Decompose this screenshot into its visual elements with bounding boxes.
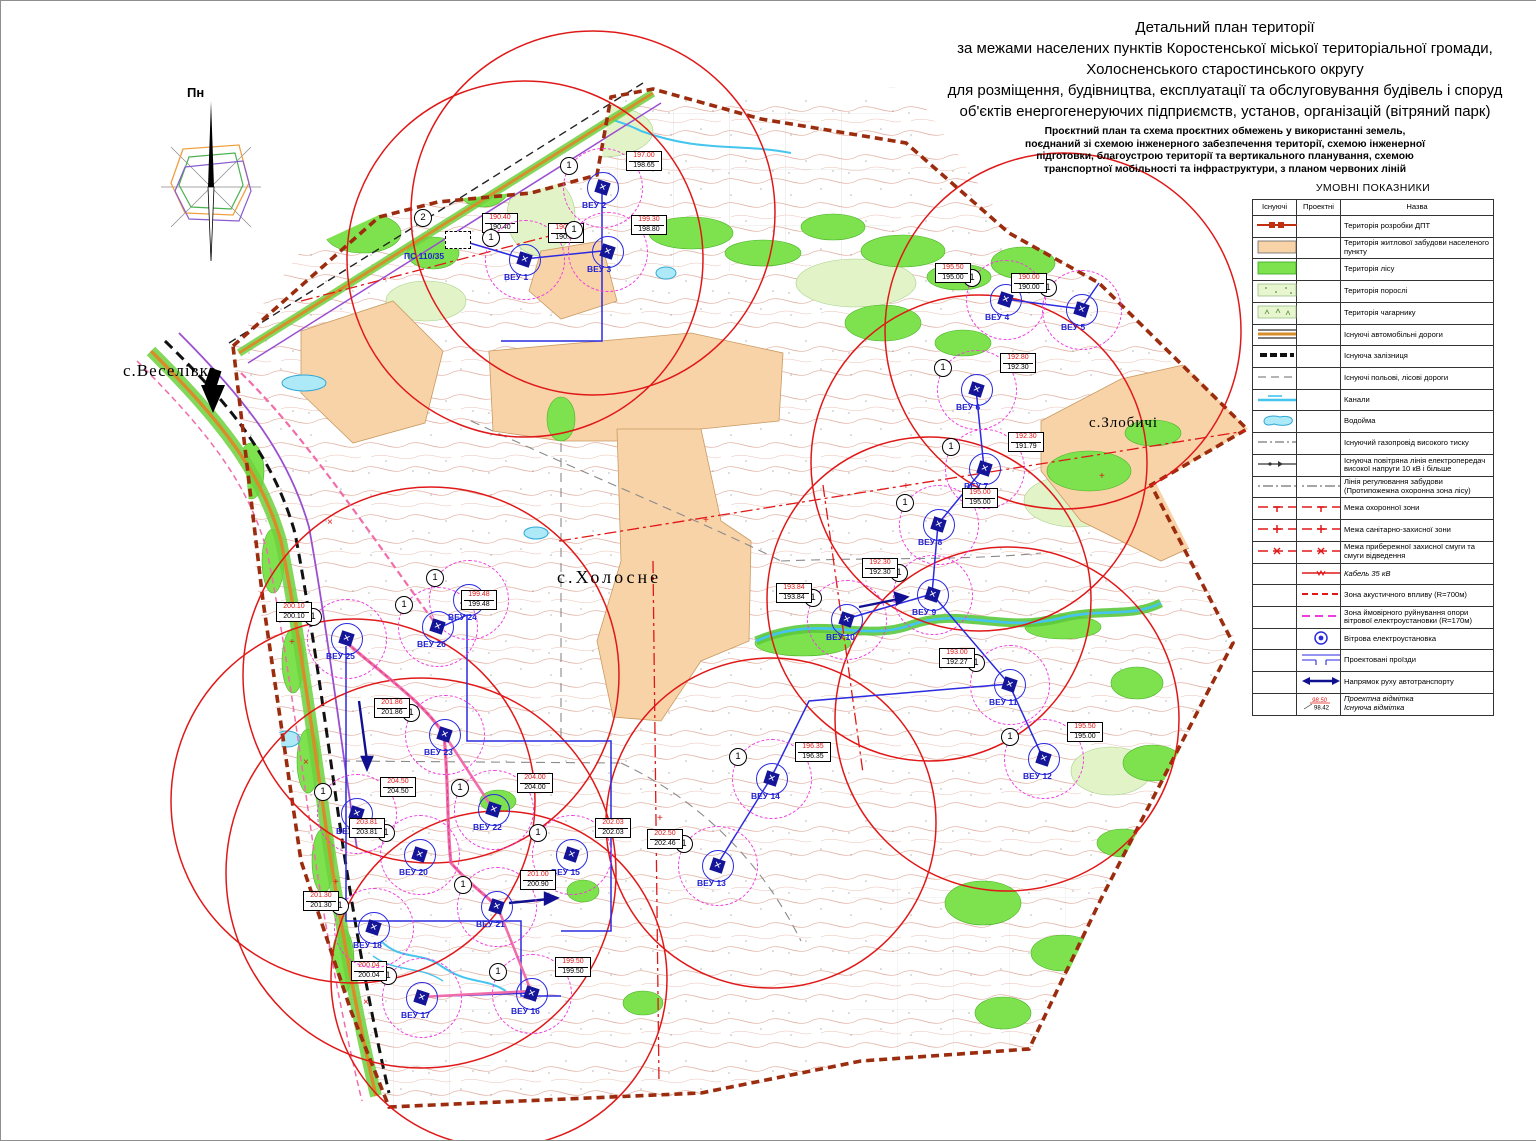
legend-symbol-projected <box>1297 454 1341 476</box>
turbine-elevation-box: 195.00195.00 <box>962 488 998 508</box>
legend-symbol-projected <box>1297 389 1341 411</box>
legend-symbol-existing <box>1253 433 1297 455</box>
legend-row: Існуючі польові, лісові дороги <box>1253 368 1494 390</box>
elevation-existing: 192.30 <box>865 569 895 578</box>
svg-text:+: + <box>657 813 663 824</box>
elevation-existing: 196.35 <box>798 753 828 762</box>
elevation-existing: 195.00 <box>1070 733 1100 742</box>
turbine-badge: 1 <box>565 221 583 239</box>
legend-row: Кабель 35 кВ <box>1253 563 1494 585</box>
elevation-projected: 192.30 <box>1011 433 1041 443</box>
elevation-existing: 191.79 <box>1011 443 1041 452</box>
elevation-existing: 192.30 <box>1003 364 1033 373</box>
turbine-label: ВЕУ 8 <box>918 537 942 547</box>
legend-item-name: Напрямок руху автотранспорту <box>1341 672 1494 694</box>
legend-row: 98.5098.42Проектна відмітка Існуюча відм… <box>1253 693 1494 715</box>
legend-symbol-projected <box>1297 259 1341 281</box>
legend-symbol-existing <box>1253 346 1297 368</box>
elevation-existing: 202.03 <box>598 829 628 838</box>
turbine-elevation-box: 199.50199.50 <box>555 957 591 977</box>
substation-badge: 2 <box>414 209 432 227</box>
title-line: Холосненського старостинського округу <box>929 59 1521 80</box>
legend-symbol-existing <box>1253 259 1297 281</box>
legend-item-name: Межа прибережної захисної смуги та смуги… <box>1341 541 1494 563</box>
legend-row: Вітрова електроустановка <box>1253 628 1494 650</box>
turbine-badge: 1 <box>314 783 332 801</box>
turbine-elevation-box: 192.30192.30 <box>862 558 898 578</box>
turbine-elevation-box: 204.50204.50 <box>380 777 416 797</box>
svg-text:×: × <box>363 997 369 1008</box>
elevation-existing: 201.86 <box>377 709 407 718</box>
legend-symbol-projected <box>1297 606 1341 628</box>
elevation-projected: 195.50 <box>938 264 968 274</box>
elevation-projected: 192.80 <box>1003 354 1033 364</box>
elevation-projected: 201.30 <box>306 892 336 902</box>
village-label-zlobychi: с.Злобичі <box>1089 415 1158 432</box>
legend-item-name: Водойма <box>1341 411 1494 433</box>
turbine-label: ВЕУ 22 <box>473 822 502 832</box>
turbine-badge: 1 <box>395 596 413 614</box>
legend-symbol-existing <box>1253 216 1297 238</box>
turbine-badge: 1 <box>934 359 952 377</box>
svg-text:+: + <box>1099 471 1105 482</box>
elevation-projected: 199.50 <box>558 958 588 968</box>
legend-table: Існуючі Проектні Назва Територія розробк… <box>1252 199 1494 716</box>
turbine-label: ВЕУ 4 <box>985 312 1009 322</box>
legend-symbol-existing <box>1253 606 1297 628</box>
turbine-badge: 1 <box>489 963 507 981</box>
elevation-projected: 204.50 <box>383 778 413 788</box>
legend-row: Територія лісу <box>1253 259 1494 281</box>
turbine-badge: 1 <box>896 494 914 512</box>
subtitle-line: транспортної мобільності та інфраструкту… <box>929 164 1521 177</box>
turbine-label: ВЕУ 10 <box>826 632 855 642</box>
legend-col-existing: Існуючі <box>1253 200 1297 216</box>
legend-col-name: Назва <box>1341 200 1494 216</box>
turbine-elevation-box: 199.48199.48 <box>461 590 497 610</box>
legend-row: Територія розробки ДПТ <box>1253 216 1494 238</box>
elevation-existing: 198.80 <box>634 226 664 235</box>
title-line: об'єктів енергогенеруючих підприємств, у… <box>929 101 1521 122</box>
village-label-kholosne: с.Холосне <box>557 567 661 588</box>
legend-row: Проектовані проїзди <box>1253 650 1494 672</box>
legend-row: Лінія регулювання забудови (Протипожежна… <box>1253 476 1494 498</box>
turbine-badge: 1 <box>454 876 472 894</box>
legend-symbol-existing <box>1253 520 1297 542</box>
elevation-existing: 204.00 <box>520 784 550 793</box>
turbine-elevation-box: 201.30201.30 <box>303 891 339 911</box>
elevation-projected: 192.30 <box>865 559 895 569</box>
turbine-elevation-box: 193.84193.84 <box>776 583 812 603</box>
legend-item-name: Канали <box>1341 389 1494 411</box>
legend-item-name: Зона ймовірного руйнування опори вітрово… <box>1341 606 1494 628</box>
legend-item-name: Межа охоронної зони <box>1341 498 1494 520</box>
elevation-existing: 195.00 <box>938 274 968 283</box>
elevation-existing: 200.90 <box>523 881 553 890</box>
legend-item-name: Існуюча повітряна лінія електропередач в… <box>1341 454 1494 476</box>
subtitle-line: Проєктний план та схема проєктних обмеже… <box>929 126 1521 139</box>
legend-symbol-existing <box>1253 411 1297 433</box>
elevation-projected: 195.50 <box>1070 723 1100 733</box>
substation-label: ПС 110/35 <box>404 251 444 261</box>
elevation-existing: 200.04 <box>354 972 384 981</box>
turbine-elevation-box: 192.30191.79 <box>1008 432 1044 452</box>
title-line: за межами населених пунктів Коростенсько… <box>929 38 1521 59</box>
legend-symbol-projected <box>1297 281 1341 303</box>
legend-symbol-projected <box>1297 216 1341 238</box>
turbine-label: ВЕУ 25 <box>326 651 355 661</box>
turbine-label: ВЕУ 2 <box>582 200 606 210</box>
turbine-elevation-box: 192.80192.30 <box>1000 353 1036 373</box>
turbine-elevation-box: 193.00192.27 <box>939 648 975 668</box>
legend-item-name: Існуючі автомобільні дороги <box>1341 324 1494 346</box>
turbine-label: ВЕУ 21 <box>476 919 505 929</box>
elevation-projected: 199.30 <box>634 216 664 226</box>
legend-symbol-projected <box>1297 411 1341 433</box>
compass-north-label: Пн <box>187 85 204 100</box>
turbine-badge: 1 <box>482 229 500 247</box>
legend-item-name: Проектовані проїзди <box>1341 650 1494 672</box>
legend-symbol-projected <box>1297 302 1341 324</box>
svg-text:98.42: 98.42 <box>1314 705 1330 711</box>
turbine-label: ВЕУ 3 <box>587 264 611 274</box>
legend-symbol-projected <box>1297 368 1341 390</box>
elevation-projected: 202.03 <box>598 819 628 829</box>
turbine-elevation-box: 190.00190.00 <box>1011 273 1047 293</box>
turbine-label: ВЕУ 13 <box>697 878 726 888</box>
turbine-elevation-box: 195.50195.00 <box>1067 722 1103 742</box>
elevation-existing: 200.10 <box>279 613 309 622</box>
legend-symbol-projected <box>1297 628 1341 650</box>
legend-col-projected: Проектні <box>1297 200 1341 216</box>
legend-symbol-existing <box>1253 368 1297 390</box>
legend-row: Існуюча залізниця <box>1253 346 1494 368</box>
legend-symbol-existing <box>1253 563 1297 585</box>
elevation-projected: 201.86 <box>377 699 407 709</box>
elevation-existing: 203.81 <box>352 829 382 838</box>
turbine-elevation-box: 196.35196.35 <box>795 742 831 762</box>
elevation-existing: 195.00 <box>965 499 995 508</box>
plan-sheet: ×+× +×+ ++× + <box>0 0 1536 1141</box>
turbine-label: ВЕУ 18 <box>353 940 382 950</box>
legend-item-name: Зона акустичного впливу (R=700м) <box>1341 585 1494 607</box>
elevation-projected: 190.00 <box>1014 274 1044 284</box>
compass-graphic <box>143 85 283 265</box>
elevation-existing: 192.27 <box>942 659 972 668</box>
elevation-projected: 202.50 <box>650 830 680 840</box>
legend-symbol-existing <box>1253 454 1297 476</box>
elevation-existing: 201.30 <box>306 902 336 911</box>
legend-row: Межа охоронної зони <box>1253 498 1494 520</box>
turbine-label: ВЕУ 26 <box>417 639 446 649</box>
elevation-projected: 200.10 <box>279 603 309 613</box>
turbine-elevation-box: 199.30198.80 <box>631 215 667 235</box>
title-line: Детальний план території <box>929 17 1521 38</box>
legend-symbol-projected: 98.5098.42 <box>1297 693 1341 715</box>
turbine-elevation-box: 202.03202.03 <box>595 818 631 838</box>
legend-symbol-existing <box>1253 389 1297 411</box>
turbine-elevation-box: 197.00198.65 <box>626 151 662 171</box>
legend-row: Межа санітарно-захисної зони <box>1253 520 1494 542</box>
turbine-elevation-box: 200.10200.10 <box>276 602 312 622</box>
elevation-projected: 204.00 <box>520 774 550 784</box>
title-block: Детальний план території за межами насел… <box>929 17 1521 176</box>
legend-row: Територія чагарнику <box>1253 302 1494 324</box>
legend-symbol-existing <box>1253 541 1297 563</box>
legend-symbol-projected <box>1297 520 1341 542</box>
compass-rose: Пн <box>143 85 283 265</box>
legend-symbol-existing <box>1253 585 1297 607</box>
legend-row: Територія порослі <box>1253 281 1494 303</box>
turbine-label: ВЕУ 23 <box>424 747 453 757</box>
legend-symbol-existing <box>1253 498 1297 520</box>
legend: УМОВНІ ПОКАЗНИКИ Існуючі Проектні Назва … <box>1252 182 1494 716</box>
legend-symbol-projected <box>1297 433 1341 455</box>
turbine-elevation-box: 204.00204.00 <box>517 773 553 793</box>
legend-symbol-projected <box>1297 346 1341 368</box>
turbine-badge: 1 <box>942 438 960 456</box>
elevation-existing: 193.84 <box>779 594 809 603</box>
legend-item-name: Територія порослі <box>1341 281 1494 303</box>
legend-symbol-existing <box>1253 628 1297 650</box>
legend-row: Канали <box>1253 389 1494 411</box>
legend-symbol-existing <box>1253 693 1297 715</box>
legend-row: Існуючий газопровід високого тиску <box>1253 433 1494 455</box>
elevation-projected: 196.35 <box>798 743 828 753</box>
turbine-label: ВЕУ 11 <box>989 697 1017 707</box>
legend-symbol-projected <box>1297 541 1341 563</box>
legend-item-name: Кабель 35 кВ <box>1341 563 1494 585</box>
elevation-projected: 197.00 <box>629 152 659 162</box>
legend-item-name: Територія чагарнику <box>1341 302 1494 324</box>
legend-symbol-existing <box>1253 281 1297 303</box>
svg-text:+: + <box>703 515 709 526</box>
legend-symbol-projected <box>1297 324 1341 346</box>
legend-symbol-projected <box>1297 585 1341 607</box>
village-label-veselivka: с.Веселівка <box>123 361 217 381</box>
legend-item-name: Лінія регулювання забудови (Протипожежна… <box>1341 476 1494 498</box>
legend-row: Існуюча повітряна лінія електропередач в… <box>1253 454 1494 476</box>
turbine-elevation-box: 201.86201.86 <box>374 698 410 718</box>
subtitle-line: поєднаний зі схемою інженерного забезпеч… <box>929 139 1521 152</box>
legend-item-name: Межа санітарно-захисної зони <box>1341 520 1494 542</box>
svg-text:+: + <box>289 637 295 648</box>
legend-item-name: Вітрова електроустановка <box>1341 628 1494 650</box>
turbine-label: ВЕУ 16 <box>511 1006 540 1016</box>
svg-text:×: × <box>303 757 309 768</box>
elevation-projected: 199.48 <box>464 591 494 601</box>
turbine-elevation-box: 195.50195.00 <box>935 263 971 283</box>
legend-item-name: Територія розробки ДПТ <box>1341 216 1494 238</box>
elevation-projected: 203.81 <box>352 819 382 829</box>
svg-text:×: × <box>327 517 333 528</box>
turbine-label: ВЕУ 9 <box>912 607 936 617</box>
elevation-projected: 193.00 <box>942 649 972 659</box>
turbine-badge: 1 <box>1001 728 1019 746</box>
turbine-badge: 1 <box>729 748 747 766</box>
turbine-label: ВЕУ 20 <box>399 867 428 877</box>
legend-symbol-projected <box>1297 476 1341 498</box>
turbine-label: ВЕУ 14 <box>751 791 780 801</box>
legend-row: Межа прибережної захисної смуги та смуги… <box>1253 541 1494 563</box>
title-line: для розміщення, будівництва, експлуатаці… <box>929 80 1521 101</box>
turbine-label: ВЕУ 17 <box>401 1010 430 1020</box>
elevation-existing: 199.48 <box>464 601 494 610</box>
legend-symbol-projected <box>1297 237 1341 259</box>
elevation-existing: 199.50 <box>558 968 588 977</box>
legend-item-name: Існуючі польові, лісові дороги <box>1341 368 1494 390</box>
elevation-existing: 204.50 <box>383 788 413 797</box>
legend-row: Водойма <box>1253 411 1494 433</box>
elevation-projected: 193.84 <box>779 584 809 594</box>
legend-title: УМОВНІ ПОКАЗНИКИ <box>1252 182 1494 194</box>
elevation-projected: 195.00 <box>965 489 995 499</box>
turbine-label: ВЕУ 1 <box>504 272 528 282</box>
turbine-label: ВЕУ 12 <box>1023 771 1052 781</box>
legend-symbol-projected <box>1297 498 1341 520</box>
legend-row: Напрямок руху автотранспорту <box>1253 672 1494 694</box>
turbine-elevation-box: 203.81203.81 <box>349 818 385 838</box>
turbine-badge: 1 <box>529 824 547 842</box>
legend-row: Територія житлової забудови населеного п… <box>1253 237 1494 259</box>
turbine-elevation-box: 202.50202.46 <box>647 829 683 849</box>
svg-text:+: + <box>903 481 909 492</box>
legend-symbol-projected <box>1297 563 1341 585</box>
turbine-badge: 1 <box>560 157 578 175</box>
legend-symbol-projected <box>1297 650 1341 672</box>
elevation-existing: 202.46 <box>650 840 680 849</box>
legend-row: Зона акустичного впливу (R=700м) <box>1253 585 1494 607</box>
turbine-badge: 1 <box>451 779 469 797</box>
legend-item-name: Територія житлової забудови населеного п… <box>1341 237 1494 259</box>
legend-item-name: Існуючий газопровід високого тиску <box>1341 433 1494 455</box>
subtitle-line: підготовки, благоустрою території та вер… <box>929 151 1521 164</box>
legend-item-name: Територія лісу <box>1341 259 1494 281</box>
legend-symbol-existing <box>1253 302 1297 324</box>
legend-symbol-existing <box>1253 672 1297 694</box>
legend-row: Зона ймовірного руйнування опори вітрово… <box>1253 606 1494 628</box>
substation-symbol <box>445 231 471 249</box>
turbine-badge: 1 <box>426 569 444 587</box>
elevation-existing: 198.65 <box>629 162 659 171</box>
legend-symbol-existing <box>1253 650 1297 672</box>
turbine-label: ВЕУ 6 <box>956 402 980 412</box>
legend-symbol-projected <box>1297 672 1341 694</box>
turbine-elevation-box: 201.00200.90 <box>520 870 556 890</box>
turbine-label: ВЕУ 5 <box>1061 322 1085 332</box>
svg-text:+: + <box>333 877 339 888</box>
legend-item-name: Проектна відмітка Існуюча відмітка <box>1341 693 1494 715</box>
elevation-projected: 201.00 <box>523 871 553 881</box>
elevation-existing: 190.00 <box>1014 284 1044 293</box>
legend-row: Існуючі автомобільні дороги <box>1253 324 1494 346</box>
legend-symbol-existing <box>1253 324 1297 346</box>
legend-symbol-existing <box>1253 476 1297 498</box>
legend-symbol-existing <box>1253 237 1297 259</box>
legend-item-name: Існуюча залізниця <box>1341 346 1494 368</box>
